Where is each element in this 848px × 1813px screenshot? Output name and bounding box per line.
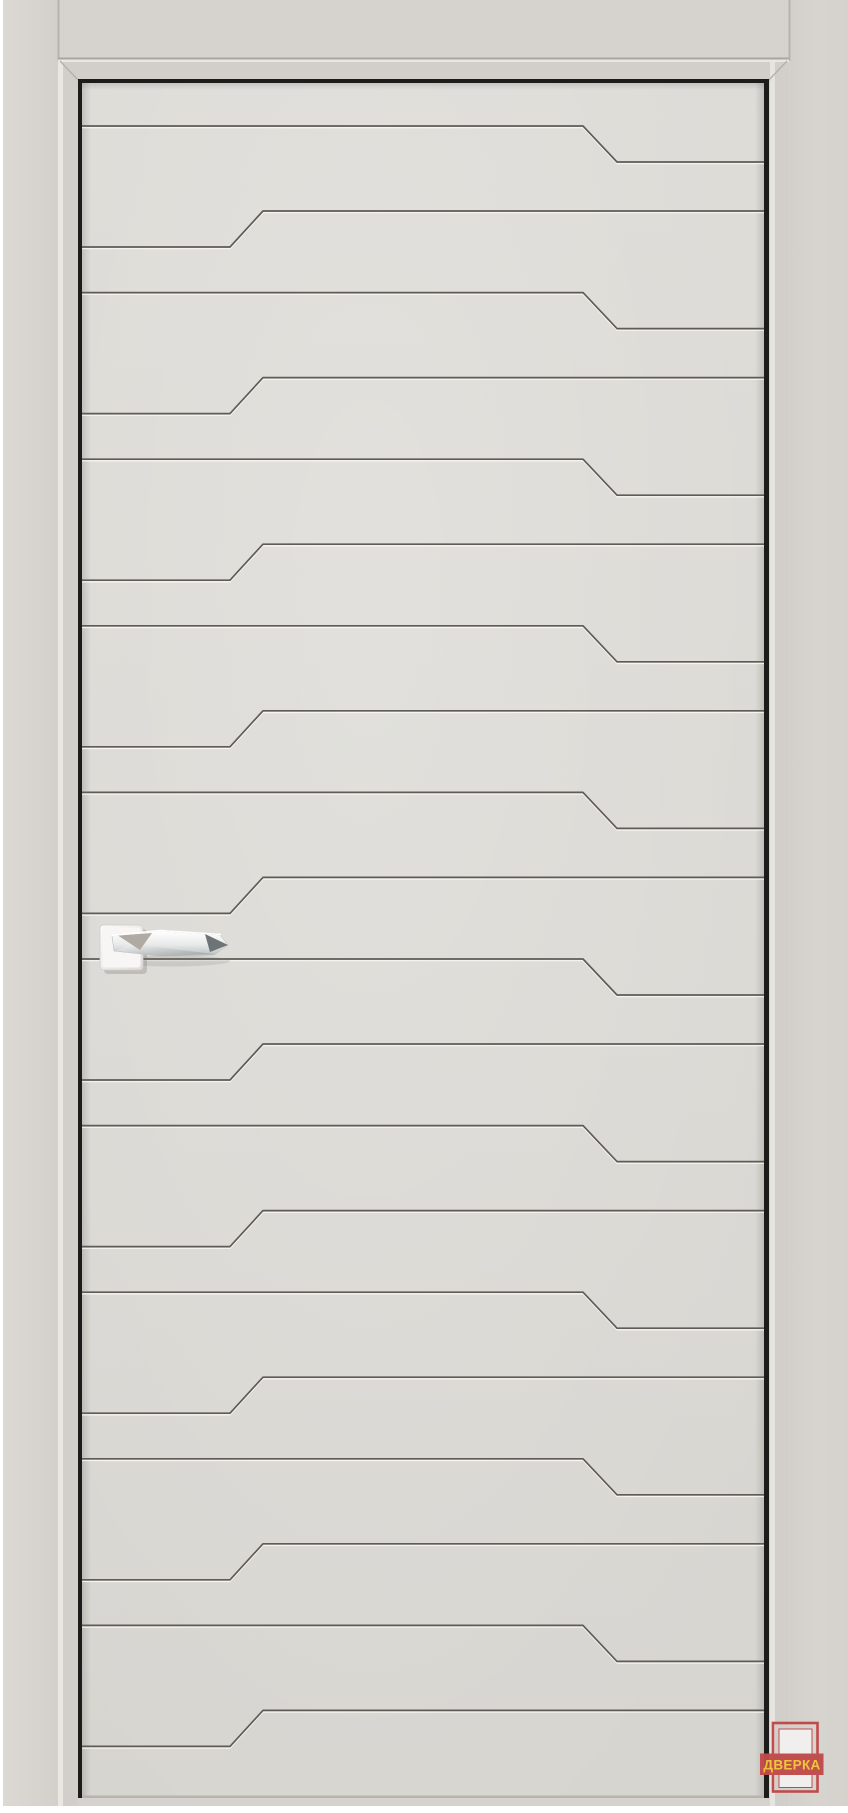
door-product-photo: ДВЕРКА xyxy=(0,0,848,1813)
leaf-bottom-edge xyxy=(82,1796,764,1799)
frame-top-groove xyxy=(58,58,789,60)
frame-jamb-left xyxy=(63,62,78,1806)
frame-seam-right xyxy=(789,0,791,61)
watermark-text: ДВЕРКА xyxy=(763,1758,820,1773)
frame-casing-left xyxy=(3,0,58,1806)
frame-jamb-top xyxy=(62,62,787,80)
door-gap-top xyxy=(78,79,768,84)
door-gap-right xyxy=(764,79,769,1798)
frame-seam-left xyxy=(58,0,60,61)
handle-lever xyxy=(112,931,228,957)
frame-jamb-right xyxy=(775,62,789,1806)
door-gap-left xyxy=(78,79,83,1798)
frame-casing-right xyxy=(790,0,848,1806)
door-render: ДВЕРКА xyxy=(0,0,848,1813)
